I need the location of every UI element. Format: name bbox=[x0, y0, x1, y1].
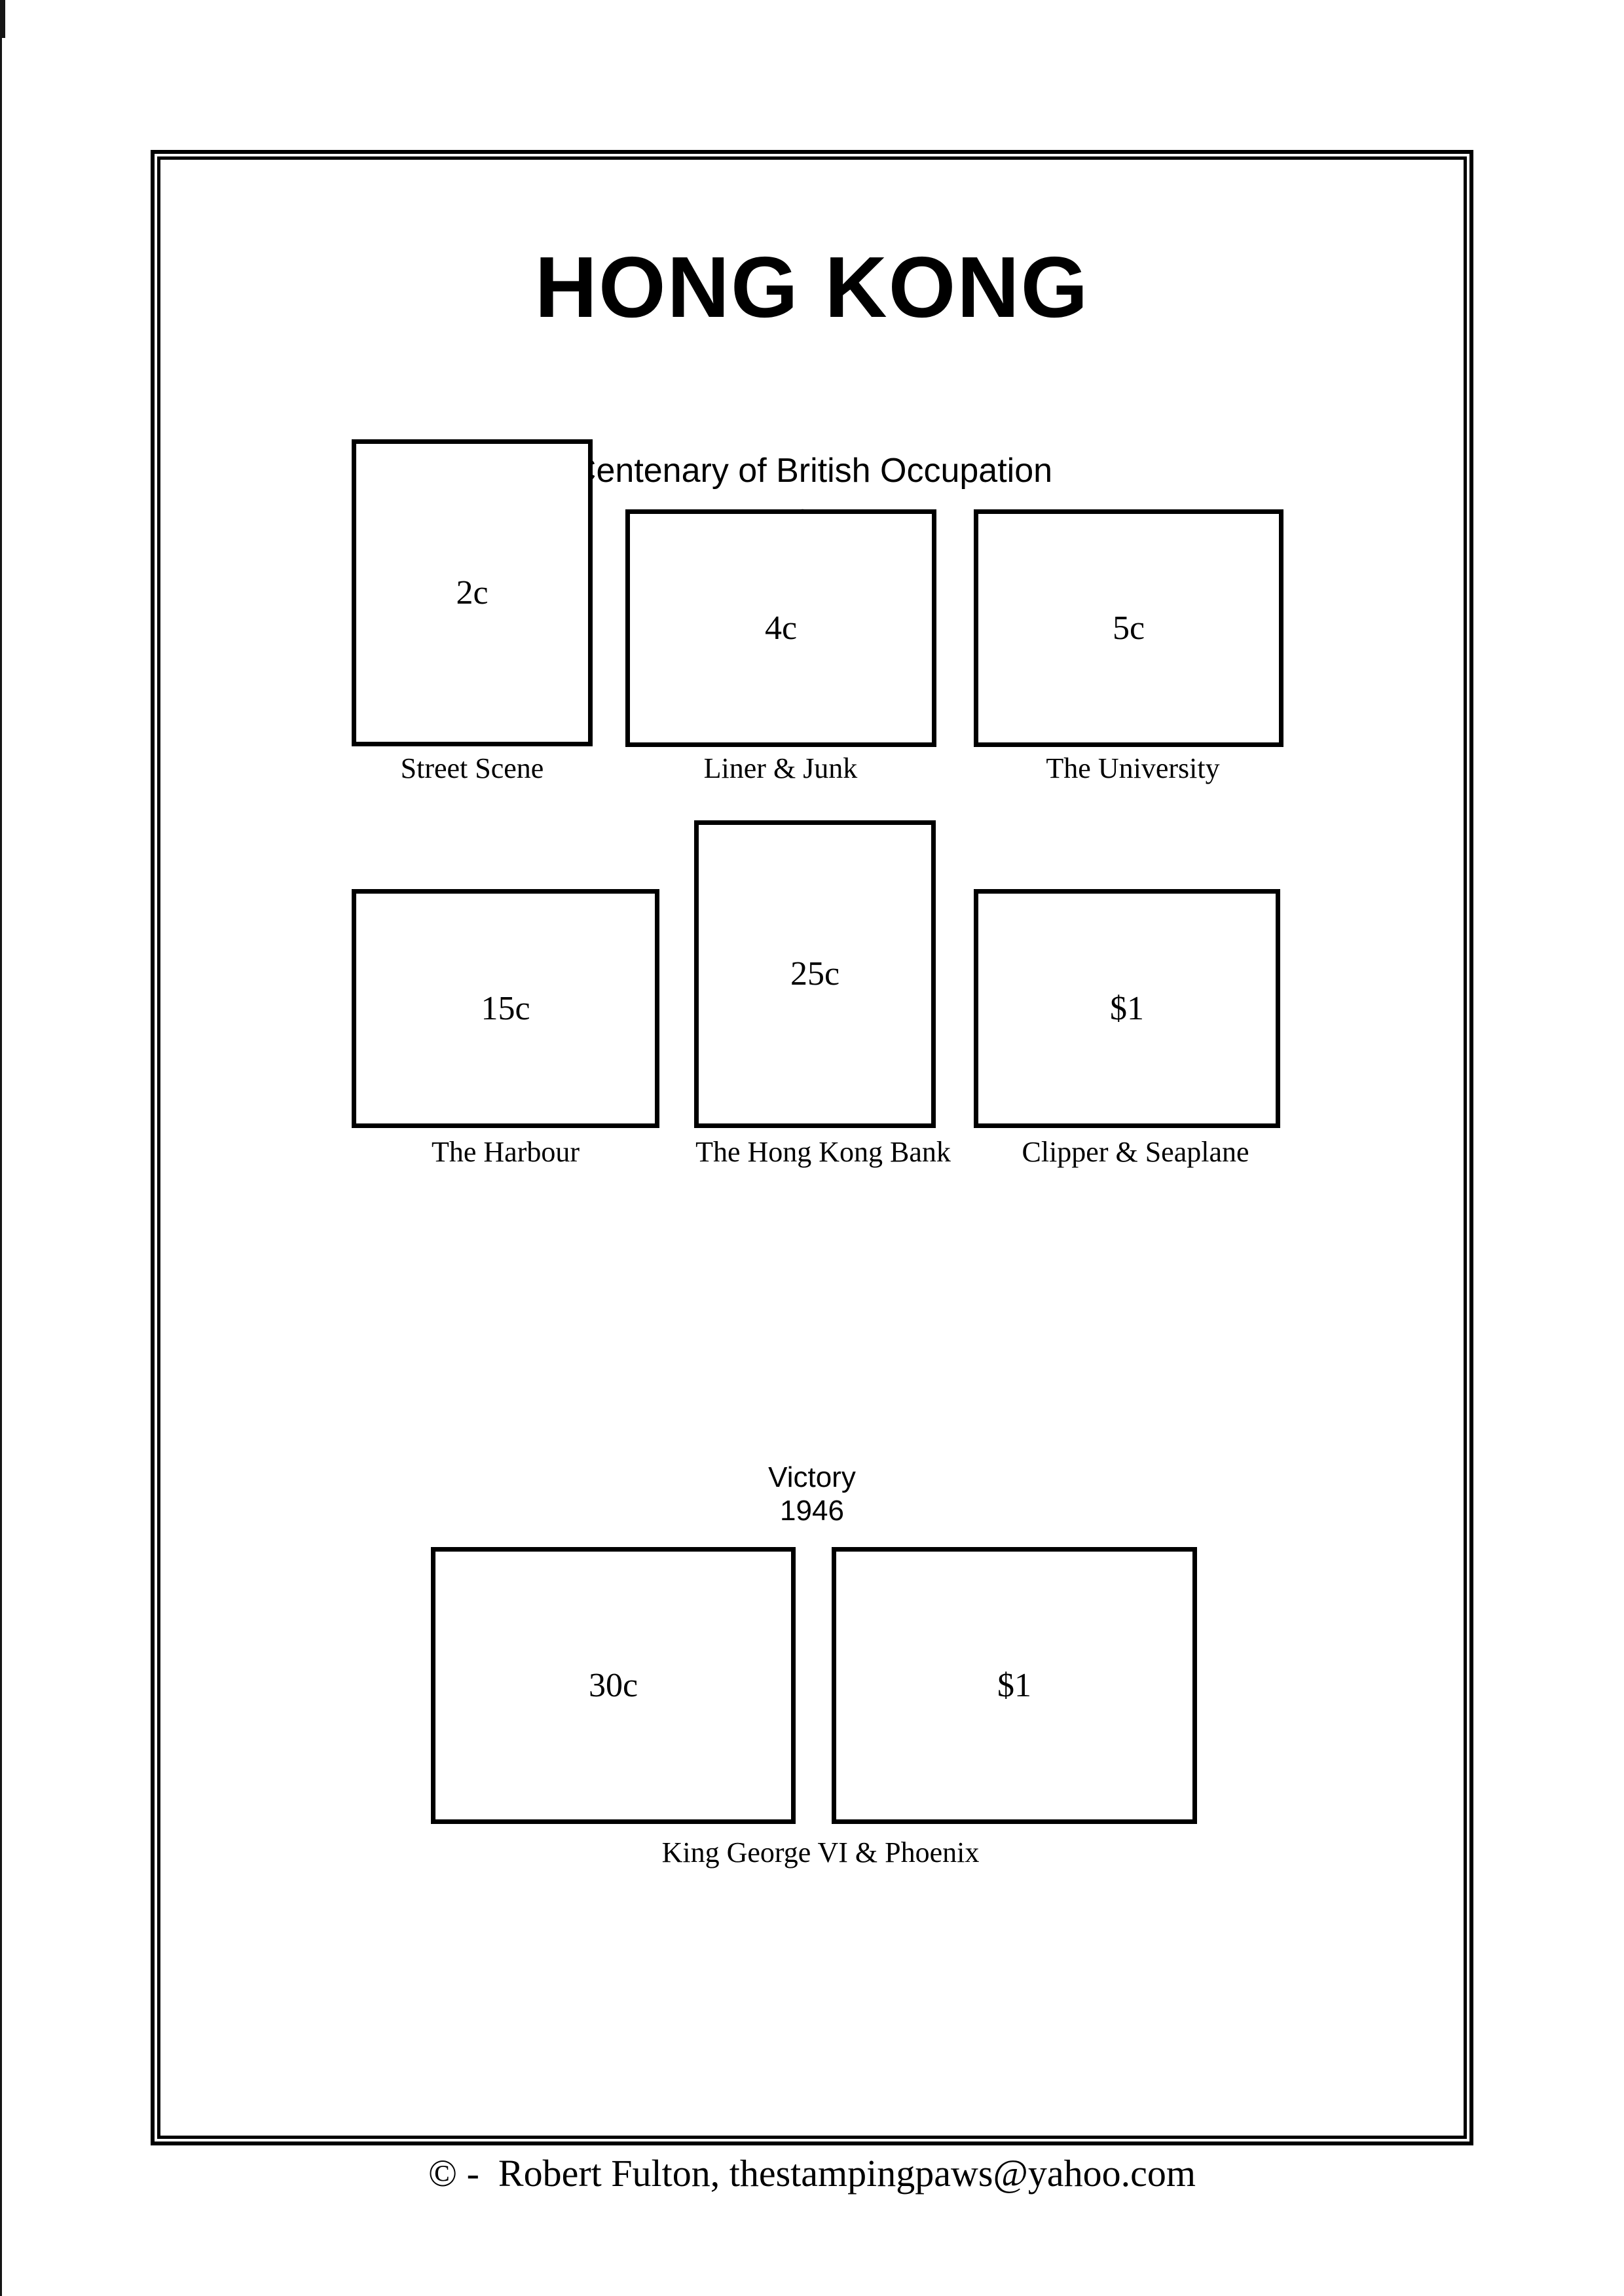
page-title: HONG KONG bbox=[0, 244, 1624, 331]
stamp-box-15c: 15c bbox=[352, 889, 659, 1128]
stamp-album-page: HONG KONG Centenary of British Occupatio… bbox=[0, 0, 1624, 2296]
scan-artifact-left-edge bbox=[0, 0, 2, 2296]
stamp-caption: The Hong Kong Bank bbox=[695, 1137, 951, 1168]
stamp-denomination: 2c bbox=[456, 576, 488, 610]
stamp-denomination: 15c bbox=[481, 992, 530, 1026]
stamp-caption: Street Scene bbox=[401, 753, 544, 784]
stamp-caption: The Harbour bbox=[432, 1137, 580, 1168]
section-title: Centenary of British Occupation bbox=[0, 445, 1624, 496]
stamp-box-25c: 25c bbox=[694, 820, 936, 1128]
section-year: 1946 bbox=[0, 1495, 1624, 1528]
stamp-box-2c: 2c bbox=[352, 439, 593, 746]
stamp-box-1dollar: $1 bbox=[974, 889, 1280, 1128]
stamp-denomination: 25c bbox=[790, 957, 840, 991]
stamp-denomination: 5c bbox=[1113, 611, 1145, 646]
stamp-caption: Liner & Junk bbox=[704, 753, 858, 784]
stamp-denomination: 30c bbox=[589, 1669, 638, 1703]
stamp-box-4c: 4c bbox=[625, 509, 936, 747]
stamp-denomination: $1 bbox=[997, 1669, 1031, 1703]
stamp-caption-shared: King George VI & Phoenix bbox=[662, 1837, 980, 1868]
stamp-box-5c: 5c bbox=[974, 509, 1283, 747]
section-title: Victory bbox=[0, 1461, 1624, 1495]
stamp-box-30c: 30c bbox=[431, 1547, 796, 1824]
scan-artifact-top-left bbox=[0, 0, 5, 38]
stamp-caption: The University bbox=[1046, 753, 1219, 784]
stamp-caption: Clipper & Seaplane bbox=[1022, 1137, 1249, 1168]
section-heading-victory: Victory 1946 bbox=[0, 1461, 1624, 1527]
stamp-denomination: $1 bbox=[1110, 992, 1144, 1026]
stamp-denomination: 4c bbox=[765, 611, 797, 646]
stamp-box-1dollar-victory: $1 bbox=[832, 1547, 1197, 1824]
footer-credit: © - Robert Fulton, thestampingpaws@yahoo… bbox=[0, 2153, 1624, 2195]
